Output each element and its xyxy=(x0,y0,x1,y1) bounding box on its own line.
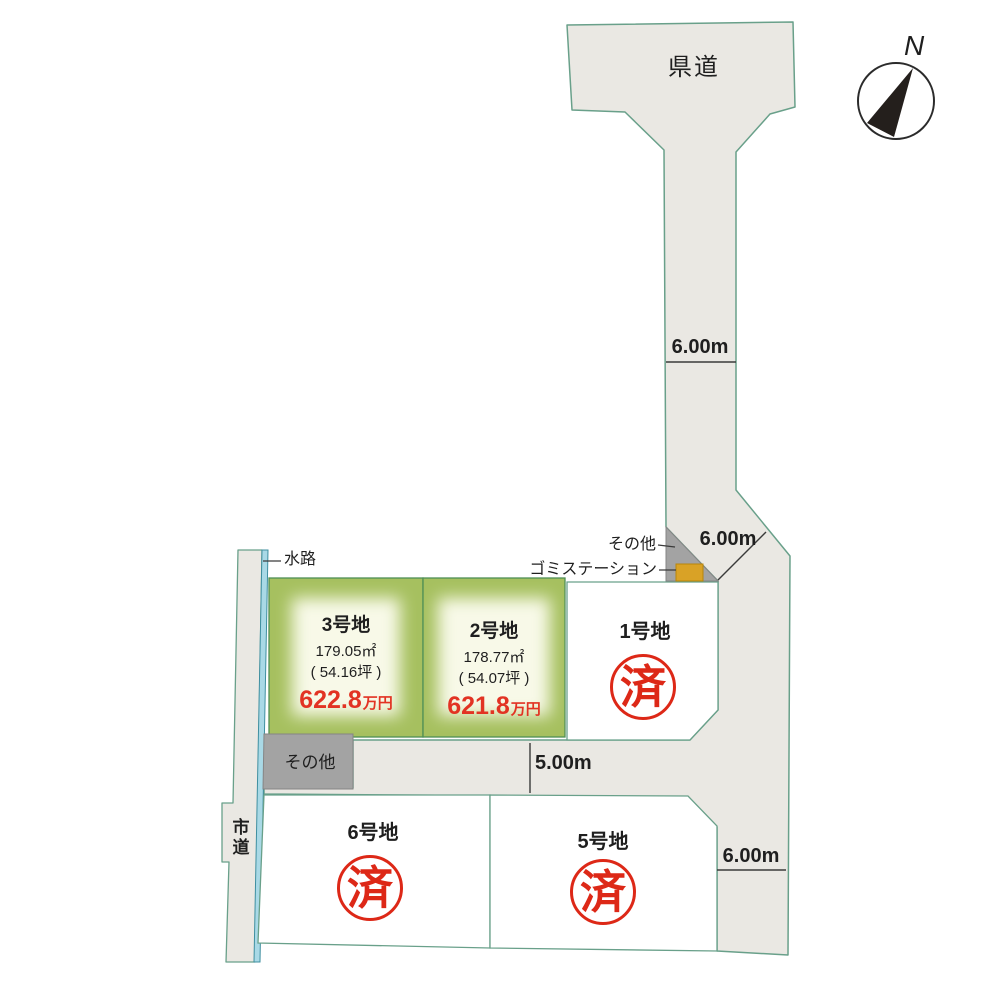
other-right-label: その他 xyxy=(598,536,656,554)
plot-5-name: 5号地 xyxy=(553,831,653,854)
waterway-label: 水路 xyxy=(284,551,316,569)
map-geometry xyxy=(0,0,1000,1000)
dimension-south-road: 5.00m xyxy=(535,752,592,775)
plot-3-price: 622.8万円 xyxy=(271,686,421,715)
plot-2-info: 2号地 178.77㎡ ( 54.07坪 ) 621.8万円 xyxy=(419,616,569,721)
compass-north-label: N xyxy=(904,30,924,62)
plot-2-name: 2号地 xyxy=(419,616,569,643)
plot-3-price-value: 622.8 xyxy=(299,686,362,714)
plot-6-name: 6号地 xyxy=(323,822,423,845)
sold-stamp-plot-5: 済 xyxy=(570,859,636,925)
prefectural-road-label: 県道 xyxy=(644,54,744,82)
plot-2-area-tsubo: ( 54.07坪 ) xyxy=(419,667,569,688)
plot-2-price: 621.8万円 xyxy=(419,692,569,721)
plot-3-price-unit: 万円 xyxy=(363,695,393,712)
plot-3-area-sqm: 179.05㎡ xyxy=(271,640,421,661)
garbage-station-label: ゴミステーション xyxy=(522,561,657,579)
dimension-upper-road: 6.00m xyxy=(660,336,740,359)
sold-stamp-plot-6: 済 xyxy=(337,855,403,921)
plot-1-name: 1号地 xyxy=(595,621,695,644)
city-road-label: 市道 xyxy=(229,818,249,858)
plot-2-price-unit: 万円 xyxy=(511,701,541,718)
sold-stamp-plot-1: 済 xyxy=(610,654,676,720)
plot-2-price-value: 621.8 xyxy=(447,692,510,720)
plot-3-area-tsubo: ( 54.16坪 ) xyxy=(271,661,421,682)
plot-2-area-sqm: 178.77㎡ xyxy=(419,646,569,667)
other-left-label: その他 xyxy=(266,753,354,773)
garbage-station-marker xyxy=(676,564,703,581)
plot-3-name: 3号地 xyxy=(271,610,421,637)
lot-map-canvas: 県道 市道 水路 その他 ゴミステーション その他 N 6.00m 6.00m … xyxy=(0,0,1000,1000)
plot-3-info: 3号地 179.05㎡ ( 54.16坪 ) 622.8万円 xyxy=(271,610,421,715)
dimension-bend-road: 6.00m xyxy=(689,528,767,551)
dimension-east-road: 6.00m xyxy=(712,845,790,868)
